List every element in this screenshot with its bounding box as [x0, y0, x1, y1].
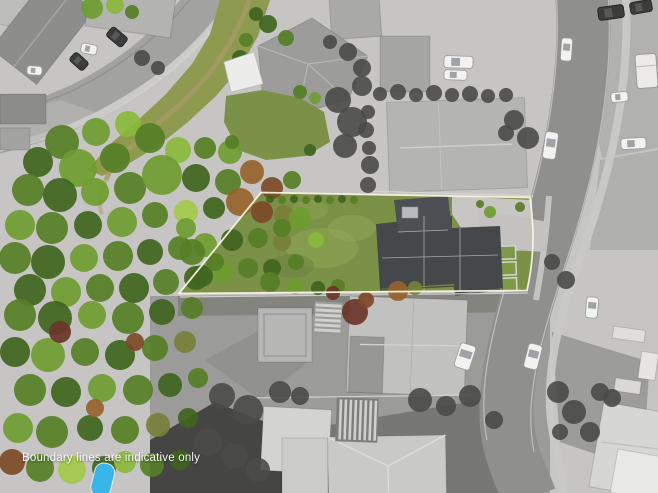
gray-tree — [209, 383, 235, 409]
gray-tree — [151, 61, 165, 75]
steps-upper — [313, 301, 343, 333]
gray-tree — [358, 122, 374, 138]
tree — [251, 201, 273, 223]
tree — [226, 188, 254, 216]
tree — [309, 92, 321, 104]
aerial-scene — [0, 0, 658, 493]
car — [621, 137, 647, 149]
car — [585, 297, 599, 319]
tree — [12, 174, 44, 206]
tree — [238, 258, 258, 278]
tree — [225, 135, 239, 149]
tree — [179, 239, 205, 265]
tree — [302, 196, 310, 204]
gray-tree — [459, 385, 481, 407]
tree — [283, 171, 301, 189]
tree — [100, 143, 130, 173]
tree — [125, 5, 139, 19]
gray-tree — [134, 50, 150, 66]
stairs-lower — [335, 397, 379, 442]
tree — [126, 333, 144, 351]
tree — [240, 160, 264, 184]
gray-tree — [233, 395, 263, 425]
gray-tree — [352, 76, 372, 96]
tree — [78, 301, 106, 329]
tree — [194, 137, 216, 159]
tree — [350, 196, 358, 204]
tree — [70, 244, 98, 272]
tree — [0, 337, 30, 367]
tree — [188, 368, 208, 388]
gray-tree — [552, 424, 568, 440]
tree — [221, 229, 243, 251]
gray-tree — [362, 141, 376, 155]
tree — [248, 228, 268, 248]
gray-tree — [390, 84, 406, 100]
gray-tree — [246, 458, 270, 482]
tree — [36, 212, 68, 244]
tree — [239, 33, 253, 47]
gray-tree — [603, 389, 621, 407]
tree — [308, 232, 324, 248]
tree — [23, 147, 53, 177]
tree — [81, 178, 109, 206]
tree — [71, 338, 99, 366]
tree — [326, 196, 334, 204]
tree — [278, 196, 286, 204]
skylight — [402, 207, 418, 218]
tree — [278, 30, 294, 46]
tree — [74, 211, 102, 239]
gray-tree — [462, 86, 478, 102]
tree — [142, 155, 182, 195]
tree — [31, 245, 65, 279]
gray-tree — [436, 396, 456, 416]
tree — [142, 202, 168, 228]
car — [611, 91, 629, 102]
tree — [153, 269, 179, 295]
tree — [114, 172, 146, 204]
gray-tree — [373, 87, 387, 101]
tree — [103, 241, 133, 271]
tree — [273, 219, 291, 237]
tree — [181, 297, 203, 319]
gray-tree — [361, 156, 379, 174]
tree — [314, 195, 322, 203]
gray-tree — [333, 134, 357, 158]
tree — [178, 408, 198, 428]
caravan — [635, 53, 658, 88]
tree — [0, 242, 31, 274]
tree — [304, 144, 316, 156]
gray-tree — [221, 443, 247, 469]
gray-tree — [544, 254, 560, 270]
car — [444, 55, 473, 68]
gray-tree — [408, 388, 432, 412]
tree — [484, 206, 496, 218]
tree — [182, 164, 210, 192]
gray-tree — [360, 177, 376, 193]
gray-tree — [481, 89, 495, 103]
tree — [158, 373, 182, 397]
tree — [123, 375, 153, 405]
tree — [146, 413, 170, 437]
gray-tree — [562, 400, 586, 424]
tree — [5, 210, 35, 240]
gray-tree — [547, 381, 569, 403]
tree — [203, 197, 225, 219]
tree — [260, 272, 280, 292]
tree — [43, 178, 77, 212]
tree — [266, 195, 274, 203]
tree — [142, 335, 168, 361]
gray-tree — [361, 105, 375, 119]
gray-tree — [445, 88, 459, 102]
aerial-photo: Boundary lines are indicative only — [0, 0, 658, 493]
tree — [77, 415, 103, 441]
tree — [112, 302, 144, 334]
tree — [86, 399, 104, 417]
gray-tree — [426, 85, 442, 101]
tree — [3, 413, 33, 443]
tree — [149, 299, 175, 325]
tree — [137, 239, 163, 265]
gray-tree — [269, 381, 291, 403]
tree — [82, 118, 110, 146]
gray-tree — [323, 35, 337, 49]
tree — [338, 195, 346, 203]
tree — [49, 321, 71, 343]
gray-tree — [499, 88, 513, 102]
tree — [14, 374, 46, 406]
tree — [290, 195, 298, 203]
tree — [249, 7, 263, 21]
tree — [36, 416, 68, 448]
tree — [358, 292, 374, 308]
tree — [289, 207, 311, 229]
tree — [86, 274, 114, 302]
tree — [107, 207, 137, 237]
gray-tree — [517, 127, 539, 149]
gray-tree — [580, 422, 600, 442]
tree — [293, 85, 307, 99]
boundary-disclaimer-text: Boundary lines are indicative only — [22, 451, 200, 465]
tree — [176, 218, 196, 238]
gray-tree — [339, 43, 357, 61]
tree — [4, 299, 36, 331]
gray-tree — [353, 59, 371, 77]
tree — [111, 416, 139, 444]
tree — [408, 281, 422, 295]
tree — [119, 273, 149, 303]
tree — [174, 331, 196, 353]
gray-tree — [409, 88, 423, 102]
tree — [88, 374, 116, 402]
gray-tree — [498, 125, 514, 141]
tree — [135, 123, 165, 153]
tree — [31, 338, 65, 372]
tree — [288, 254, 304, 270]
tree — [476, 200, 484, 208]
gray-tree — [291, 387, 309, 405]
gray-tree — [485, 411, 503, 429]
car — [444, 70, 467, 81]
tree — [515, 202, 525, 212]
tree — [51, 377, 81, 407]
car — [560, 38, 573, 62]
gray-tree — [557, 271, 575, 289]
car — [27, 65, 43, 75]
